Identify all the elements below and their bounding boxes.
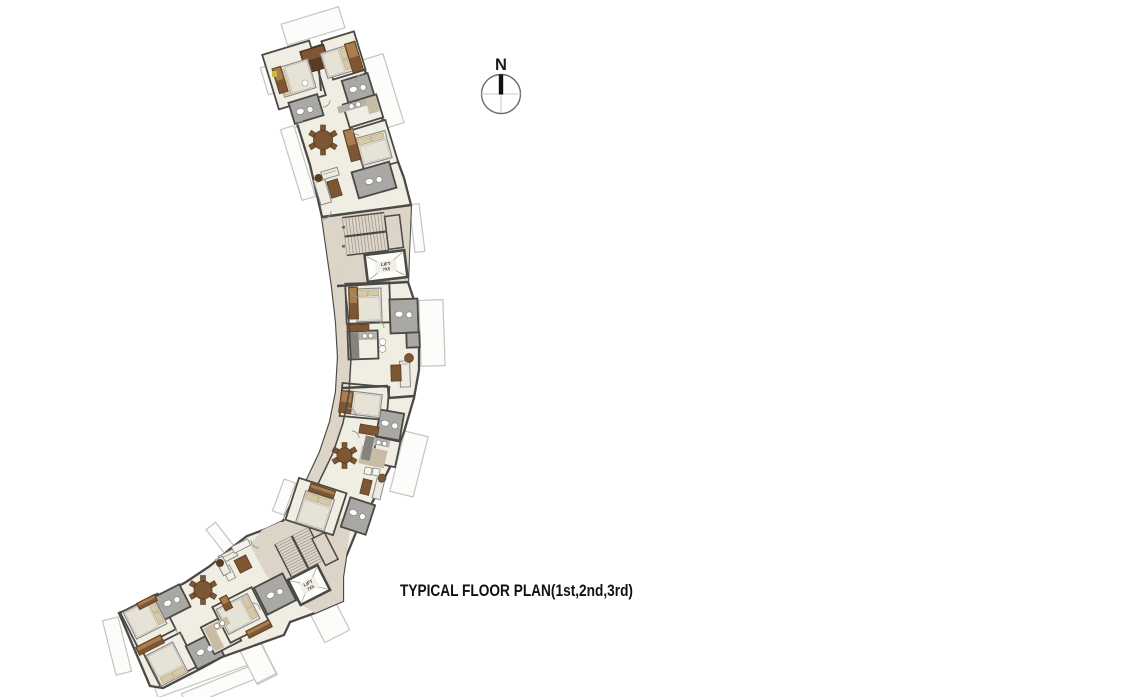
svg-text:N: N	[495, 56, 507, 74]
svg-text:TYPICAL FLOOR PLAN(1st,2nd,3rd: TYPICAL FLOOR PLAN(1st,2nd,3rd)	[400, 582, 633, 600]
svg-text:7X5: 7X5	[382, 266, 391, 272]
